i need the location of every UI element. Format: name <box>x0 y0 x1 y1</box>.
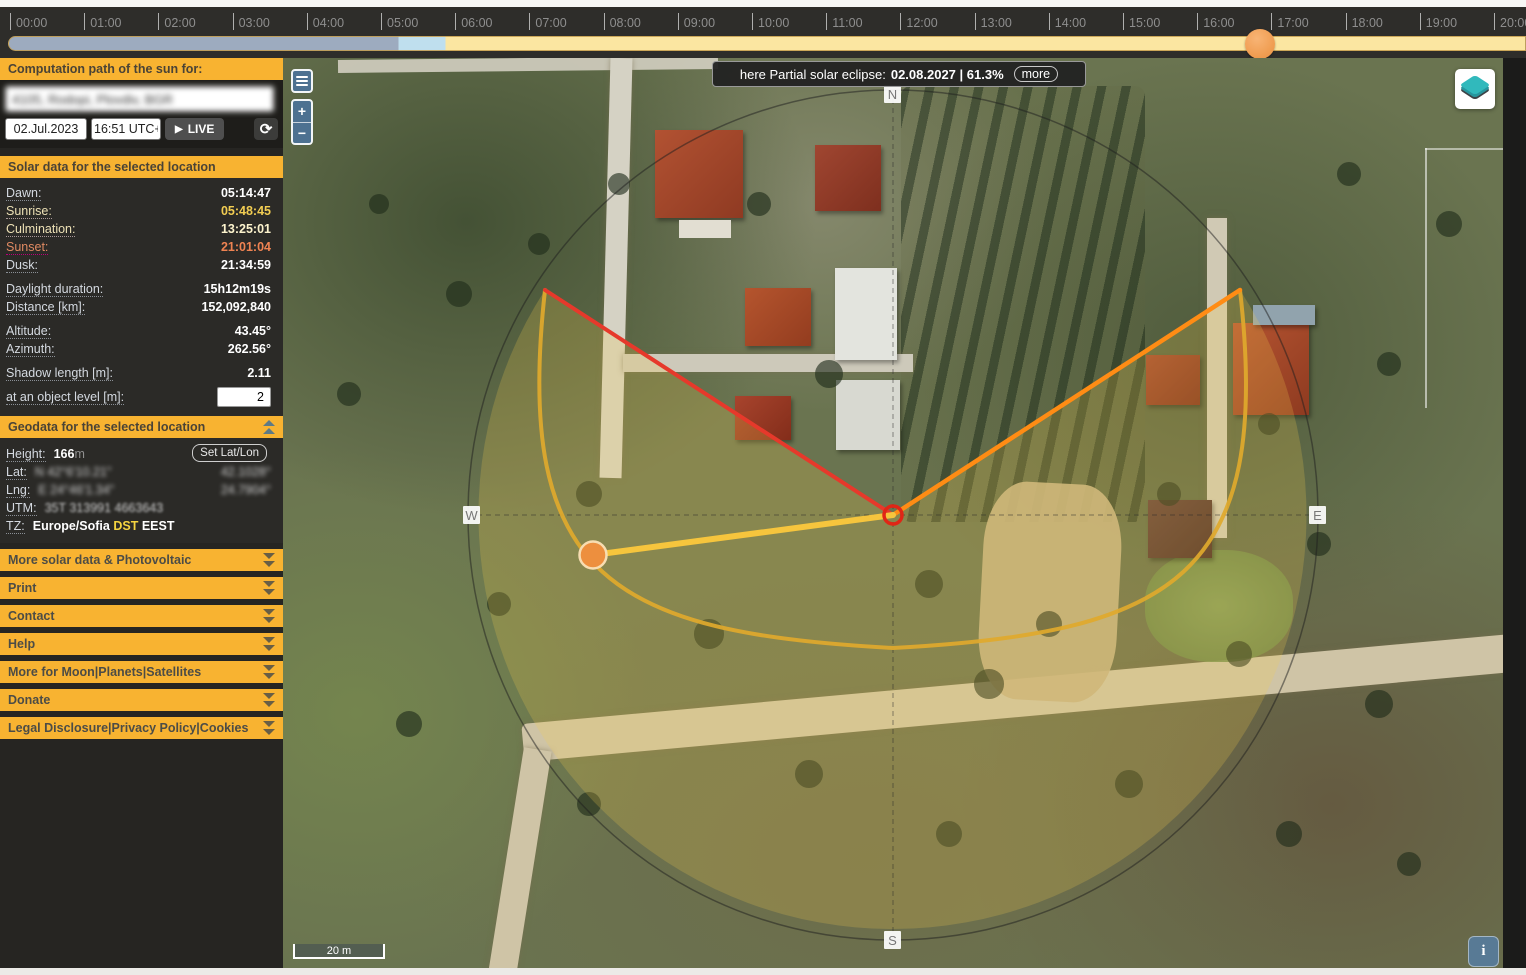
accordion-label: Print <box>8 581 36 595</box>
compass-north-label: N <box>884 85 901 103</box>
hour-label: 00:00 <box>16 16 47 30</box>
timezone-value: Europe/Sofia <box>33 519 110 533</box>
map-building <box>1148 500 1212 558</box>
solar-row-value: 13:25:01 <box>221 222 271 236</box>
bottom-strip <box>0 968 1526 975</box>
layers-button[interactable] <box>1455 69 1495 109</box>
solar-data-row: Dusk:21:34:59 <box>6 256 271 274</box>
refresh-button[interactable]: ⟳ <box>254 118 278 140</box>
solar-row-label: Shadow length [m]: <box>6 366 113 381</box>
chevron-down-icon <box>263 664 275 680</box>
geodata-header-label: Geodata for the selected location <box>8 420 205 434</box>
sidebar: Computation path of the sun for: ▶ LIVE … <box>0 58 283 968</box>
hour-label: 10:00 <box>758 16 789 30</box>
chevron-down-icon <box>263 580 275 596</box>
hour-tick <box>826 13 827 30</box>
hour-label: 13:00 <box>981 16 1012 30</box>
hour-tick <box>381 13 382 30</box>
chevron-down-icon <box>263 608 275 624</box>
solar-row-label: Culmination: <box>6 222 75 237</box>
hour-label: 06:00 <box>461 16 492 30</box>
hour-tick <box>307 13 308 30</box>
location-box <box>0 80 283 116</box>
hour-label: 03:00 <box>239 16 270 30</box>
eclipse-more-button[interactable]: more <box>1014 66 1058 82</box>
map-menu-button[interactable] <box>291 69 313 93</box>
lng-label: Lng: <box>6 483 30 498</box>
solar-data-row: Shadow length [m]:2.11 <box>6 364 271 382</box>
hour-tick <box>455 13 456 30</box>
solar-data-row: Daylight duration:15h12m19s <box>6 280 271 298</box>
chevron-down-icon <box>263 552 275 568</box>
map-orchard <box>901 86 1145 522</box>
hour-tick <box>1346 13 1347 30</box>
live-button-label: LIVE <box>188 122 215 136</box>
hour-tick <box>84 13 85 30</box>
hour-label: 08:00 <box>610 16 641 30</box>
utm-value: 35T 313991 4663643 <box>45 501 164 515</box>
map-canvas[interactable]: N W E S here Partial solar eclipse: 02.0… <box>283 58 1503 968</box>
chevron-down-icon <box>263 692 275 708</box>
map-dirt-patch <box>975 480 1124 705</box>
hour-label: 19:00 <box>1426 16 1457 30</box>
map-building <box>679 220 731 238</box>
hour-label: 20:00 <box>1500 16 1526 30</box>
map-building <box>1146 355 1200 405</box>
refresh-icon: ⟳ <box>260 120 273 138</box>
solar-row-label: Daylight duration: <box>6 282 103 297</box>
compass-south-label: S <box>884 931 901 949</box>
set-latlon-button[interactable]: Set Lat/Lon <box>192 444 267 462</box>
accordion-item-3[interactable]: Help <box>0 633 283 655</box>
zoom-out-button[interactable]: − <box>293 123 311 144</box>
menu-icon <box>296 76 308 78</box>
chevron-down-icon <box>263 636 275 652</box>
time-slider-handle[interactable] <box>1245 29 1275 58</box>
accordion-item-2[interactable]: Contact <box>0 605 283 627</box>
height-value: 166 <box>54 447 75 461</box>
solar-row-value: 43.45° <box>235 324 271 338</box>
lng-dms-value: E 24°46'1.34" <box>38 483 114 497</box>
accordion-item-1[interactable]: Print <box>0 577 283 599</box>
solar-row-value: 262.56° <box>228 342 271 356</box>
eclipse-banner-text[interactable]: here Partial solar eclipse: <box>740 67 886 82</box>
hour-label: 01:00 <box>90 16 121 30</box>
lng-decimal-value: 24.7904° <box>221 483 271 497</box>
hour-label: 17:00 <box>1277 16 1308 30</box>
hour-tick <box>1123 13 1124 30</box>
location-input[interactable] <box>5 86 274 112</box>
info-button[interactable]: i <box>1468 936 1499 967</box>
timezone-dst: DST <box>113 519 138 533</box>
hour-tick <box>158 13 159 30</box>
divider <box>0 148 283 156</box>
solar-row-label: at an object level [m]: <box>6 390 124 405</box>
object-level-input[interactable] <box>217 387 271 407</box>
hour-label: 07:00 <box>535 16 566 30</box>
hour-tick <box>1494 13 1495 30</box>
hour-tick <box>900 13 901 30</box>
solar-data-row: Distance [km]:152,092,840 <box>6 298 271 316</box>
map-fence <box>1425 148 1427 408</box>
solar-row-value: 2.11 <box>247 366 271 380</box>
solar-row-label: Distance [km]: <box>6 300 85 315</box>
solar-data-header: Solar data for the selected location <box>0 156 283 178</box>
scale-label: 20 m <box>327 945 351 957</box>
accordion-item-6[interactable]: Legal Disclosure|Privacy Policy|Cookies <box>0 717 283 739</box>
hour-label: 04:00 <box>313 16 344 30</box>
lat-decimal-value: 42.1028° <box>221 465 271 479</box>
map-fence <box>1425 148 1503 150</box>
live-button[interactable]: ▶ LIVE <box>165 118 224 140</box>
map-building <box>835 268 897 360</box>
date-input[interactable] <box>5 118 87 140</box>
geodata-panel: Set Lat/Lon Height: 166 m Lat: N 42°6'10… <box>0 438 283 543</box>
solar-data-row: at an object level [m]: <box>6 388 271 406</box>
accordion-label: Contact <box>8 609 55 623</box>
map-building <box>1233 323 1309 415</box>
play-icon: ▶ <box>175 124 183 135</box>
solar-data-row: Sunrise:05:48:45 <box>6 202 271 220</box>
time-slider-track[interactable] <box>8 36 1526 51</box>
solar-row-label: Dusk: <box>6 258 38 273</box>
compass-west-label: W <box>463 506 480 524</box>
browser-top-strip <box>0 0 1526 7</box>
right-strip <box>1503 58 1526 968</box>
solar-data-row: Dawn:05:14:47 <box>6 184 271 202</box>
solar-row-value: 21:01:04 <box>221 240 271 254</box>
map-building <box>735 396 791 440</box>
lat-row: Lat: N 42°6'10.21" 42.1028° <box>6 463 271 481</box>
accordion-item-5[interactable]: Donate <box>0 689 283 711</box>
solar-row-label: Sunrise: <box>6 204 52 219</box>
hour-tick <box>752 13 753 30</box>
solar-data-panel: Dawn:05:14:47Sunrise:05:48:45Culmination… <box>0 178 283 416</box>
lng-row: Lng: E 24°46'1.34" 24.7904° <box>6 481 271 499</box>
eclipse-banner-value: 02.08.2027 | 61.3% <box>891 67 1004 82</box>
hour-tick <box>975 13 976 30</box>
map-scale-bar: 20 m <box>293 944 385 959</box>
solar-row-label: Altitude: <box>6 324 51 339</box>
solar-row-label: Azimuth: <box>6 342 55 357</box>
hour-label: 11:00 <box>832 16 862 30</box>
accordion-label: More solar data & Photovoltaic <box>8 553 191 567</box>
solar-row-value: 21:34:59 <box>221 258 271 272</box>
hour-tick <box>1197 13 1198 30</box>
lat-label: Lat: <box>6 465 27 480</box>
hour-tick <box>233 13 234 30</box>
info-icon: i <box>1481 943 1485 960</box>
compass-east-label: E <box>1309 506 1326 524</box>
solar-data-row: Sunset:21:01:04 <box>6 238 271 256</box>
accordion-item-4[interactable]: More for Moon|Planets|Satellites <box>0 661 283 683</box>
collapse-icon[interactable] <box>263 419 275 435</box>
utm-label: UTM: <box>6 501 37 516</box>
map-building <box>836 380 900 450</box>
datetime-controls: ▶ LIVE ⟳ <box>0 116 283 148</box>
solar-row-value: 15h12m19s <box>204 282 271 296</box>
hour-label: 15:00 <box>1129 16 1160 30</box>
chevron-down-icon <box>263 720 275 736</box>
accordion-item-0[interactable]: More solar data & Photovoltaic <box>0 549 283 571</box>
timezone-suffix: EEST <box>142 519 175 533</box>
hour-tick <box>1049 13 1050 30</box>
hour-tick <box>1420 13 1421 30</box>
timezone-label: TZ: <box>6 519 25 534</box>
hour-tick <box>678 13 679 30</box>
map-building <box>745 288 811 346</box>
hour-label: 05:00 <box>387 16 418 30</box>
map-lawn <box>1145 550 1293 662</box>
hour-label: 12:00 <box>906 16 937 30</box>
solar-data-row: Azimuth:262.56° <box>6 340 271 358</box>
hour-label: 02:00 <box>164 16 195 30</box>
map-street <box>1207 218 1227 538</box>
hour-label: 18:00 <box>1352 16 1383 30</box>
accordion-label: Donate <box>8 693 50 707</box>
solar-row-value: 152,092,840 <box>201 300 271 314</box>
height-label: Height: <box>6 447 46 462</box>
timezone-row: TZ: Europe/Sofia DST EEST <box>6 517 271 535</box>
map-building <box>655 130 743 218</box>
lat-dms-value: N 42°6'10.21" <box>35 465 111 479</box>
solar-row-label: Dawn: <box>6 186 41 201</box>
hour-tick <box>604 13 605 30</box>
accordion-label: More for Moon|Planets|Satellites <box>8 665 201 679</box>
utm-row: UTM: 35T 313991 4663643 <box>6 499 271 517</box>
accordion-label: Help <box>8 637 35 651</box>
accordion-list: More solar data & PhotovoltaicPrintConta… <box>0 549 283 739</box>
computation-header: Computation path of the sun for: <box>0 58 283 80</box>
solar-data-row: Culmination:13:25:01 <box>6 220 271 238</box>
map-building <box>1253 305 1315 325</box>
hour-tick <box>1271 13 1272 30</box>
hour-label: 16:00 <box>1203 16 1234 30</box>
solar-row-value: 05:48:45 <box>221 204 271 218</box>
geodata-header[interactable]: Geodata for the selected location <box>0 416 283 438</box>
height-unit: m <box>74 447 84 461</box>
zoom-in-button[interactable]: + <box>293 101 311 123</box>
hour-tick <box>10 13 11 30</box>
hour-tick <box>529 13 530 30</box>
solar-row-label: Sunset: <box>6 240 48 255</box>
hour-label: 09:00 <box>684 16 715 30</box>
solar-row-value: 05:14:47 <box>221 186 271 200</box>
hour-label: 14:00 <box>1055 16 1086 30</box>
time-input[interactable] <box>91 118 161 140</box>
map-building <box>815 145 881 211</box>
eclipse-banner: here Partial solar eclipse: 02.08.2027 |… <box>712 61 1086 87</box>
solar-data-row: Altitude:43.45° <box>6 322 271 340</box>
map-zoom-control: + − <box>291 99 313 145</box>
time-slider-bar: 00:0001:0002:0003:0004:0005:0006:0007:00… <box>0 7 1526 58</box>
accordion-label: Legal Disclosure|Privacy Policy|Cookies <box>8 721 248 735</box>
